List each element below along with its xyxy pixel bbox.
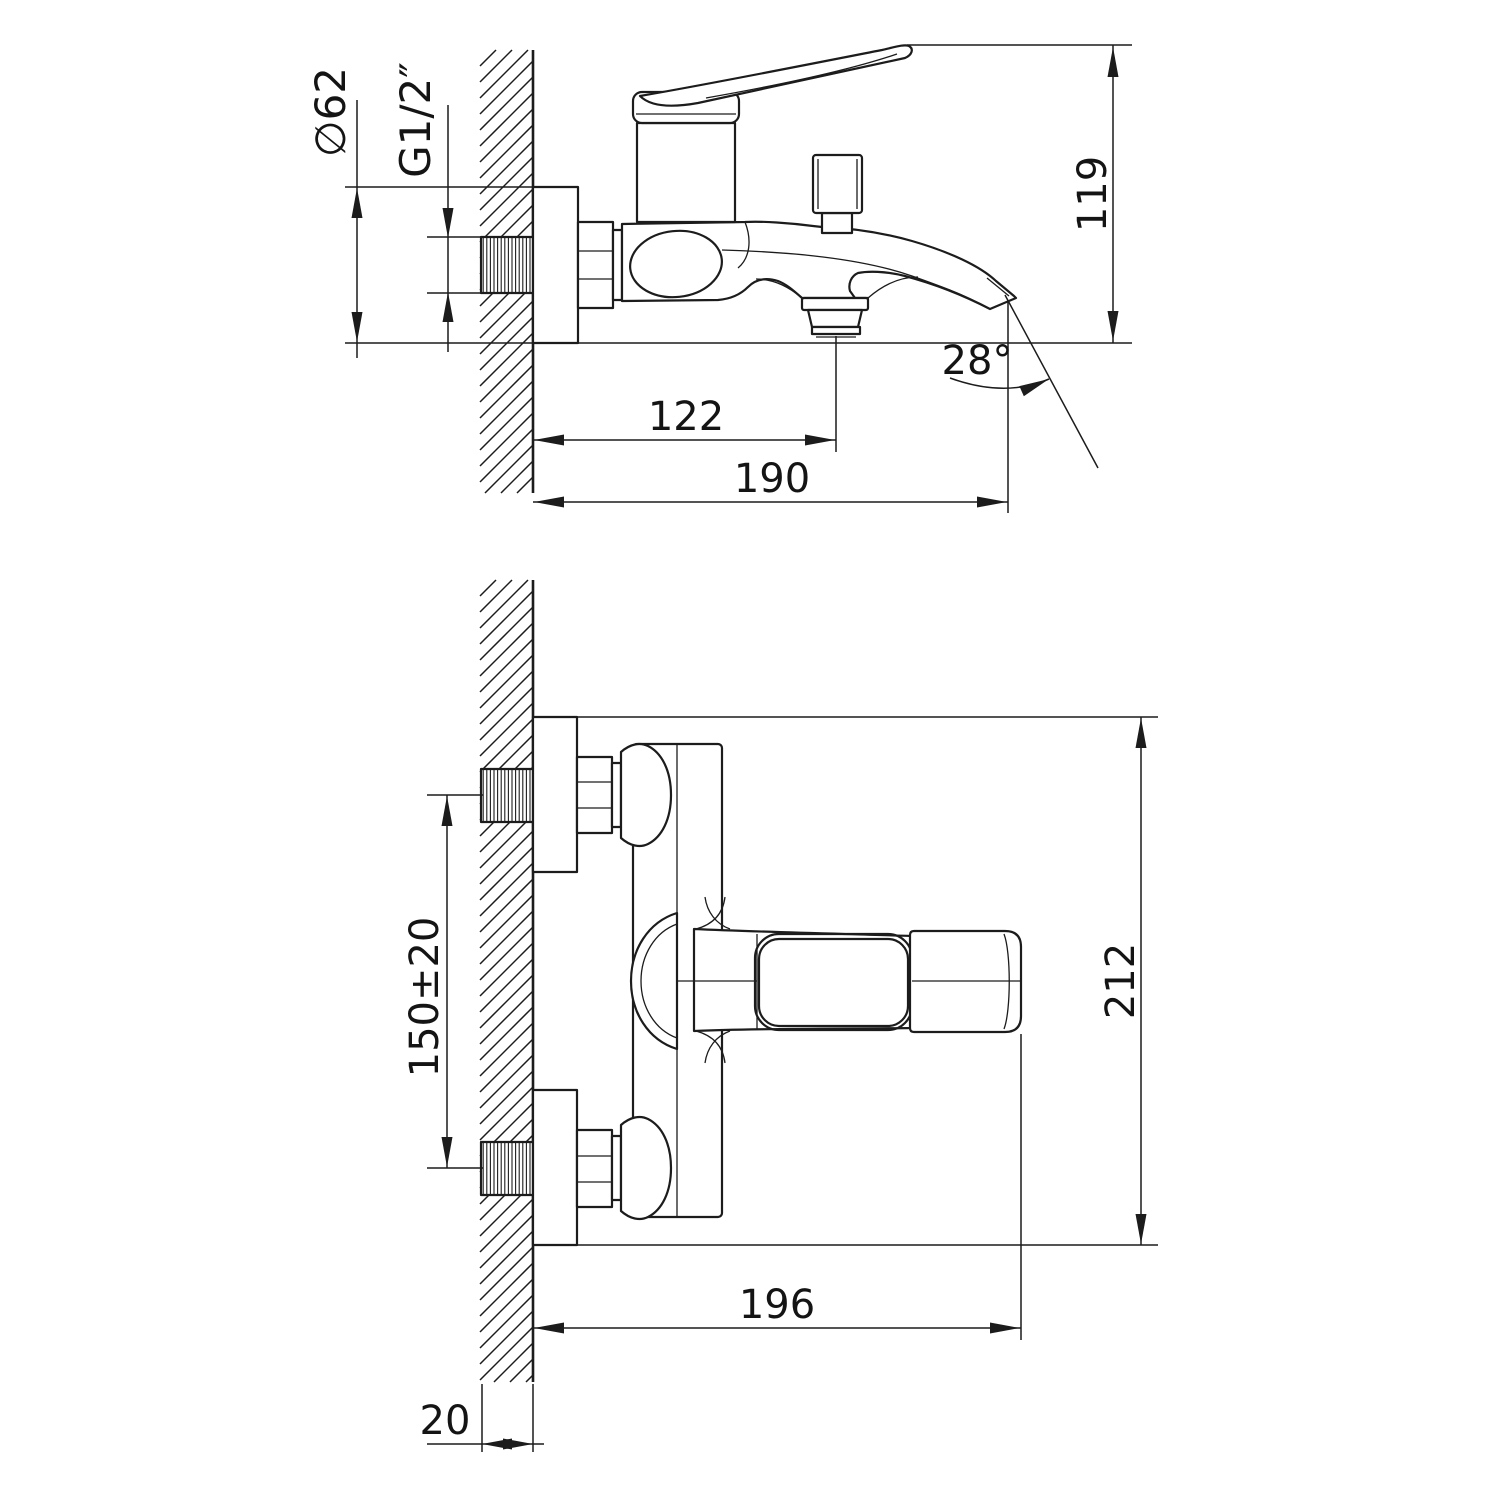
dimension-shower-outlet-offset: 122 xyxy=(533,336,836,452)
escutcheon-plate-bottom xyxy=(533,1090,577,1245)
drawing-sheet: ∅62 G1/2″ 119 122 190 28° xyxy=(0,0,1500,1500)
dimension-inlet-spacing: 150±20 xyxy=(402,795,483,1168)
dim-inlet-spacing-label: 150±20 xyxy=(402,917,448,1078)
dim-overall-depth-label: 196 xyxy=(739,1282,815,1328)
escutcheon-plate-top xyxy=(533,717,577,872)
dim-wall-clearance-label: 20 xyxy=(420,1398,471,1444)
dimension-wall-clearance: 20 xyxy=(420,1384,544,1452)
dimension-spout-angle: 28° xyxy=(942,295,1098,468)
dim-spout-height-label: 119 xyxy=(1070,156,1116,232)
dim-spout-angle-label: 28° xyxy=(942,338,1013,384)
hex-nut-top xyxy=(577,757,621,833)
cartridge-column xyxy=(637,123,735,222)
handle-lever xyxy=(640,45,912,105)
outlet-fillet-right xyxy=(868,277,918,298)
handle-lever-front xyxy=(694,929,912,1031)
dimension-spout-reach: 190 xyxy=(533,302,1008,513)
side-view: ∅62 G1/2″ 119 122 190 28° xyxy=(306,45,1132,513)
dim-thread-size-label: G1/2″ xyxy=(391,62,440,178)
threaded-tail-top xyxy=(481,769,533,822)
dim-spout-reach-label: 190 xyxy=(734,456,810,502)
spout-body xyxy=(622,222,1016,309)
diverter-knob xyxy=(813,155,862,233)
front-view: 150±20 212 196 20 xyxy=(402,580,1158,1452)
wall-hatch xyxy=(480,580,533,1382)
threaded-tail xyxy=(481,237,533,293)
threaded-tail-bottom xyxy=(481,1142,533,1195)
hex-nut xyxy=(578,222,622,308)
handle xyxy=(633,45,912,123)
diverter-stem xyxy=(822,213,852,233)
washer xyxy=(613,230,622,300)
escutcheon-plate xyxy=(533,187,578,343)
dim-overall-height-label: 212 xyxy=(1098,943,1144,1019)
shower-outlet xyxy=(802,298,868,337)
hex-nut-bottom xyxy=(577,1130,621,1207)
technical-drawing: ∅62 G1/2″ 119 122 190 28° xyxy=(0,0,1500,1500)
dim-plate-diameter-label: ∅62 xyxy=(306,67,355,157)
dim-shower-outlet-offset-label: 122 xyxy=(648,394,724,440)
dimension-thread-size: G1/2″ xyxy=(391,62,481,352)
